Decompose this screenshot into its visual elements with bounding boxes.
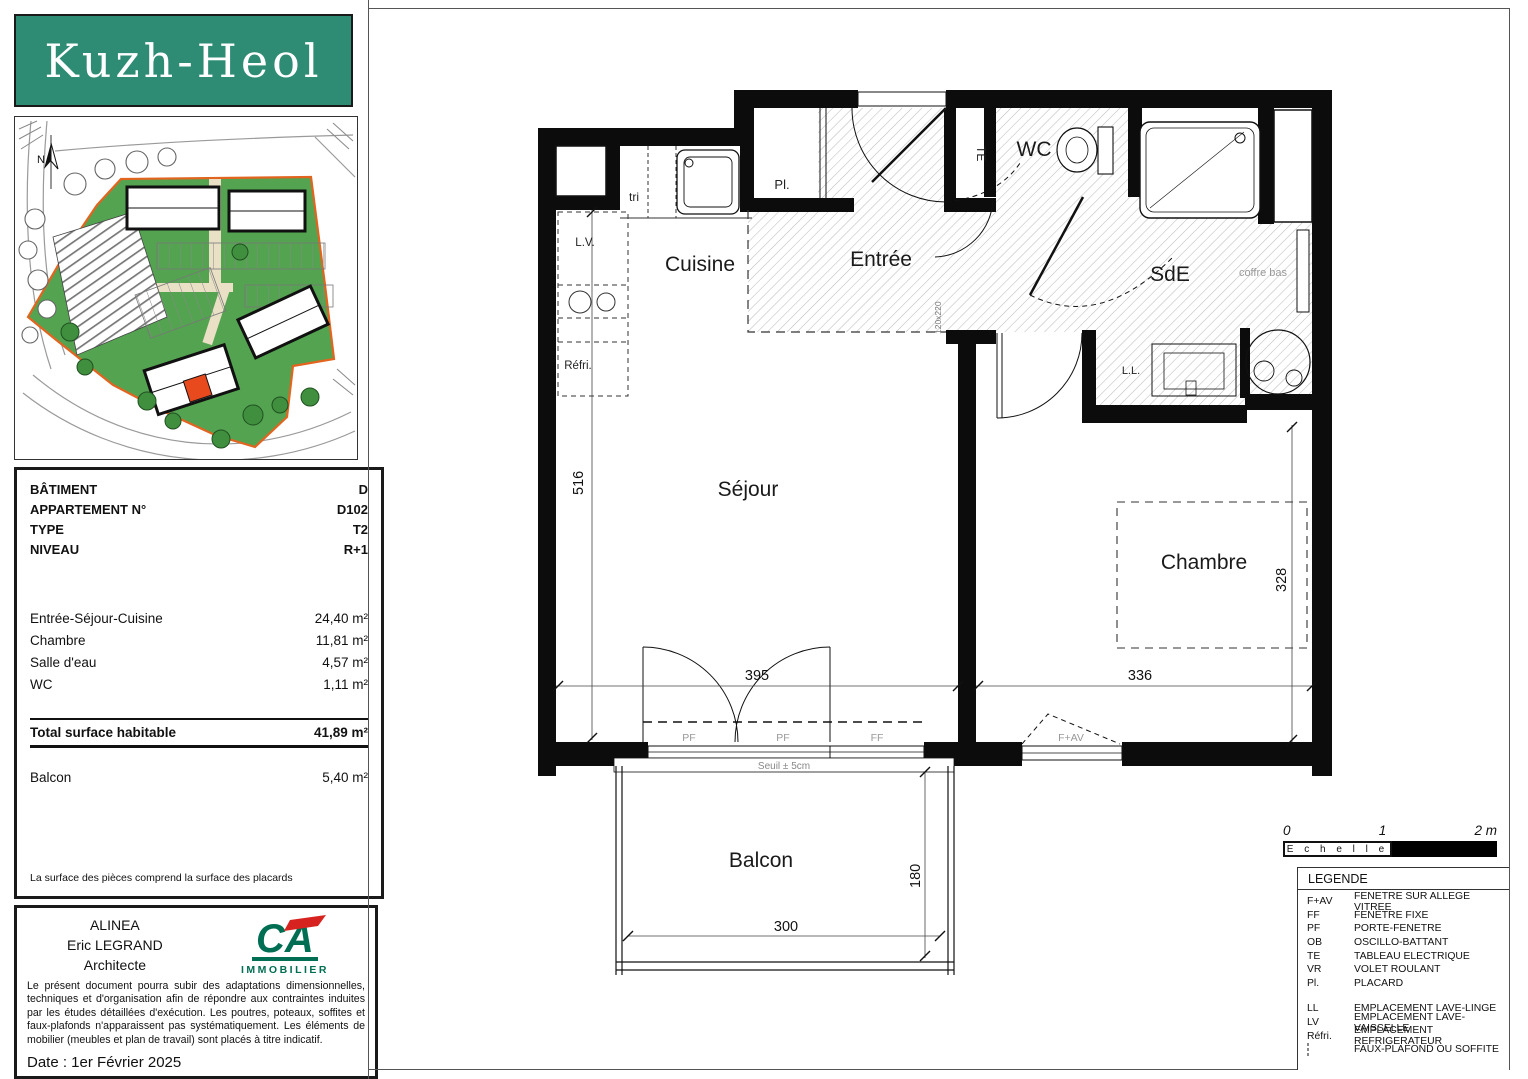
entry-door-opening [858, 92, 946, 106]
dim-sejour-height: 516 [571, 471, 587, 495]
room-label-balcon: Balcon [729, 849, 793, 872]
room-label-entree: Entrée [850, 248, 912, 271]
toilet [1057, 127, 1113, 174]
project-logo-text: Kuzh-Heol [44, 34, 322, 88]
label-coffre-bas: coffre bas [1239, 267, 1288, 279]
label-tri: tri [629, 190, 639, 204]
info-row-niveau: NIVEAU R+1 [30, 540, 368, 560]
label-pf1: PF [682, 732, 695, 744]
scale-tick-2: 2 m [1474, 823, 1497, 839]
room-label-cuisine: Cuisine [665, 253, 735, 276]
info-row-appartement: APPARTEMENT N° D102 [30, 500, 368, 520]
area-table: Entrée-Séjour-Cuisine 24,40 m² Chambre 1… [30, 608, 368, 696]
scale-bar-label-cell: E c h e l l e [1283, 841, 1392, 857]
label-fav: F+AV [1058, 732, 1084, 744]
legend-row: Pl. PLACARD [1298, 977, 1509, 991]
label-door-size: 120x220 [933, 301, 943, 334]
area-row: Chambre 11,81 m² [30, 630, 368, 652]
north-arrow-icon: N [37, 135, 58, 189]
architect-names: ALINEA Eric LEGRAND Architecte [27, 915, 203, 975]
legend-row: PF PORTE-FENETRE [1298, 922, 1509, 936]
scale-bar: 0 1 2 m E c h e l l e [1283, 823, 1497, 857]
legend-group-gap [1298, 990, 1509, 1002]
scale-tick-0: 0 [1283, 823, 1291, 839]
chambre-door [997, 333, 1082, 418]
kitchen-window-niche [556, 146, 606, 196]
legend-row: F+AV FENETRE SUR ALLEGE VITREE [1298, 895, 1509, 909]
building-b [229, 191, 305, 231]
architect-panel: ALINEA Eric LEGRAND Architecte CA IMMOBI… [14, 905, 378, 1079]
architect-name: Eric LEGRAND [27, 935, 203, 955]
site-plan-panel: N [14, 116, 358, 460]
sejour-french-doors [643, 647, 924, 742]
area-row: Salle d'eau 4,57 m² [30, 652, 368, 674]
project-logo: Kuzh-Heol [14, 14, 353, 107]
scale-bar-black-cell [1392, 841, 1497, 857]
total-surface-row: Total surface habitable 41,89 m² [30, 718, 368, 748]
room-label-sejour: Séjour [718, 478, 779, 501]
dim-balcon-width: 300 [774, 919, 798, 935]
dim-chambre-height: 328 [1274, 568, 1290, 592]
north-label: N [37, 154, 45, 166]
scale-tick-1: 1 [1379, 823, 1387, 839]
ca-immobilier-logo: CA IMMOBILIER [228, 914, 340, 976]
ca-logo-sub-text: IMMOBILIER [241, 964, 329, 976]
dim-balcon-depth: 180 [908, 864, 924, 888]
label-lv: L.V. [575, 237, 594, 249]
room-label-sde: SdE [1150, 263, 1190, 286]
kitchen-sink [677, 150, 739, 214]
scale-ticks: 0 1 2 m [1283, 823, 1497, 839]
dim-chambre-width: 336 [1128, 668, 1152, 684]
label-pl: Pl. [774, 177, 789, 192]
architect-title: Architecte [27, 955, 203, 975]
area-row: WC 1,11 m² [30, 674, 368, 696]
label-te: TE [974, 146, 988, 161]
info-row-type: TYPE T2 [30, 520, 368, 540]
site-plan-map: N [15, 117, 357, 459]
surface-note: La surface des pièces comprend la surfac… [30, 872, 368, 886]
sde-radiator [1297, 230, 1309, 312]
legend-panel: LEGENDE F+AV FENETRE SUR ALLEGE VITREE F… [1297, 867, 1509, 1070]
label-ff: FF [871, 732, 884, 744]
legend-row: Réfri. EMPLACEMENT REFRIGERATEUR [1298, 1029, 1509, 1043]
room-label-chambre: Chambre [1161, 551, 1247, 574]
legend-row: OB OSCILLO-BATTANT [1298, 936, 1509, 950]
area-row: Entrée-Séjour-Cuisine 24,40 m² [30, 608, 368, 630]
hatch-swatch-icon [1307, 1043, 1309, 1056]
dimension-texts: 395 336 300 516 328 180 [571, 471, 1290, 935]
disclaimer-text: Le présent document pourra subir des ada… [27, 980, 365, 1047]
legend-row-hatch: FAUX-PLAFOND OU SOFFITE [1298, 1043, 1509, 1057]
apartment-info-rows: BÂTIMENT D APPARTEMENT N° D102 TYPE T2 N… [30, 480, 368, 560]
label-refri: Réfri. [564, 360, 591, 372]
date-line: Date : 1er Février 2025 [27, 1054, 365, 1071]
ca-logo-underline [252, 957, 318, 961]
apartment-info-panel: BÂTIMENT D APPARTEMENT N° D102 TYPE T2 N… [14, 467, 384, 899]
shower [1140, 122, 1260, 218]
legend-title: LEGENDE [1298, 868, 1509, 890]
info-row-batiment: BÂTIMENT D [30, 480, 368, 500]
label-pf2: PF [776, 732, 789, 744]
room-label-wc: WC [1017, 138, 1052, 161]
legend-row: TE TABLEAU ELECTRIQUE [1298, 949, 1509, 963]
label-seuil: Seuil ± 5cm [758, 761, 810, 772]
sde-window-niche [1274, 110, 1312, 222]
dim-sejour-width: 395 [745, 668, 769, 684]
legend-row: VR VOLET ROULANT [1298, 963, 1509, 977]
building-a [127, 187, 219, 229]
label-ll: L.L. [1122, 365, 1140, 377]
architect-firm: ALINEA [27, 915, 203, 935]
balcony-area-row: Balcon 5,40 m² [30, 770, 368, 785]
